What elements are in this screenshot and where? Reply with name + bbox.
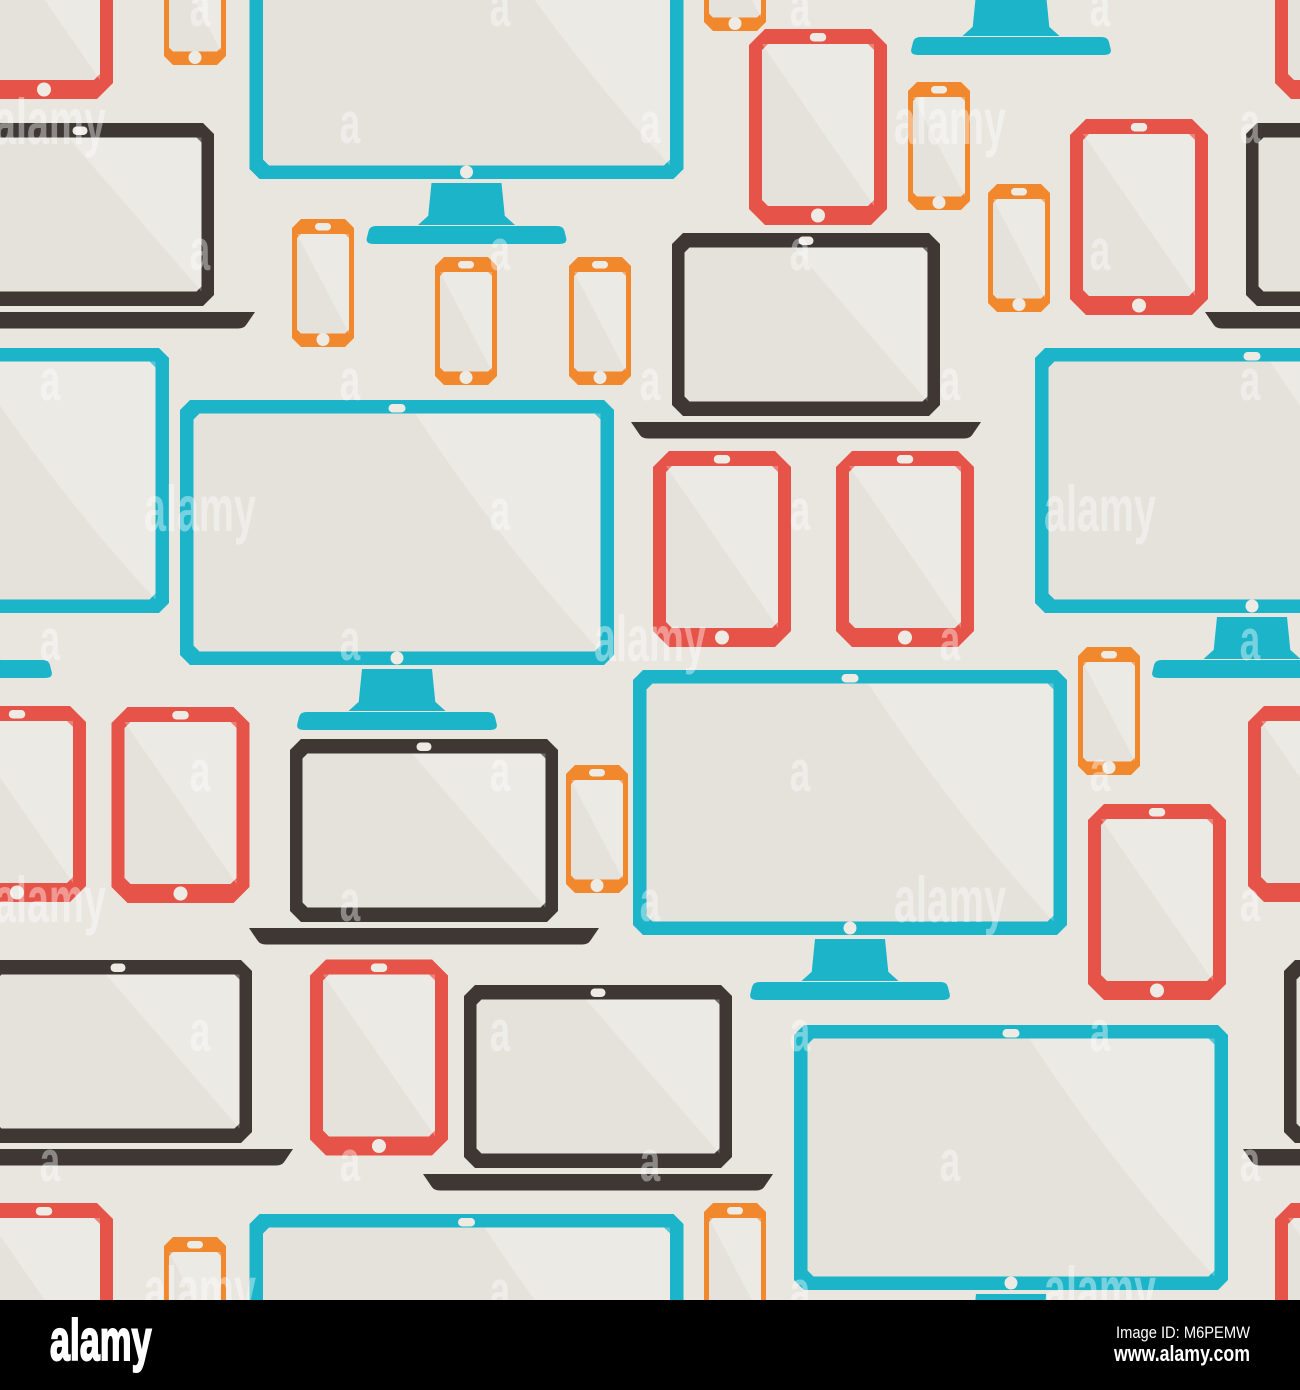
svg-text:a: a: [640, 869, 661, 934]
svg-text:a: a: [190, 0, 211, 39]
svg-text:alamy: alamy: [144, 472, 256, 545]
svg-text:a: a: [490, 739, 511, 804]
svg-text:a: a: [40, 1129, 61, 1194]
svg-text:alamy: alamy: [0, 85, 106, 158]
svg-text:a: a: [1090, 0, 1111, 39]
svg-text:alamy: alamy: [50, 1309, 152, 1373]
svg-text:a: a: [340, 869, 361, 934]
svg-text:alamy: alamy: [894, 85, 1006, 158]
svg-text:a: a: [790, 739, 811, 804]
svg-text:a: a: [1240, 348, 1261, 413]
svg-text:a: a: [1090, 739, 1111, 804]
svg-text:a: a: [40, 348, 61, 413]
svg-text:alamy: alamy: [894, 863, 1006, 936]
svg-text:a: a: [1090, 218, 1111, 283]
svg-text:a: a: [940, 348, 961, 413]
svg-text:a: a: [490, 0, 511, 39]
svg-text:www.alamy.com: www.alamy.com: [1113, 1341, 1250, 1366]
svg-text:a: a: [340, 608, 361, 673]
svg-text:a: a: [790, 218, 811, 283]
svg-text:a: a: [190, 218, 211, 283]
svg-text:a: a: [340, 1129, 361, 1194]
svg-text:a: a: [940, 1129, 961, 1194]
svg-text:alamy: alamy: [0, 863, 106, 936]
svg-text:a: a: [790, 478, 811, 543]
svg-text:a: a: [640, 348, 661, 413]
svg-text:a: a: [490, 478, 511, 543]
svg-text:alamy: alamy: [594, 602, 706, 675]
svg-text:a: a: [340, 91, 361, 156]
svg-text:a: a: [640, 91, 661, 156]
svg-text:a: a: [1240, 1129, 1261, 1194]
svg-text:a: a: [190, 739, 211, 804]
svg-text:alamy: alamy: [1044, 472, 1156, 545]
svg-text:a: a: [490, 218, 511, 283]
svg-text:a: a: [1090, 999, 1111, 1064]
svg-text:a: a: [790, 0, 811, 39]
svg-text:a: a: [40, 608, 61, 673]
svg-text:a: a: [940, 608, 961, 673]
svg-text:a: a: [1240, 869, 1261, 934]
svg-text:a: a: [1240, 608, 1261, 673]
svg-text:a: a: [1240, 91, 1261, 156]
svg-text:a: a: [790, 999, 811, 1064]
svg-text:a: a: [640, 1129, 661, 1194]
svg-text:a: a: [190, 999, 211, 1064]
svg-text:Image ID: M6PEMW: Image ID: M6PEMW: [1116, 1323, 1250, 1342]
svg-text:a: a: [340, 348, 361, 413]
svg-text:a: a: [490, 999, 511, 1064]
